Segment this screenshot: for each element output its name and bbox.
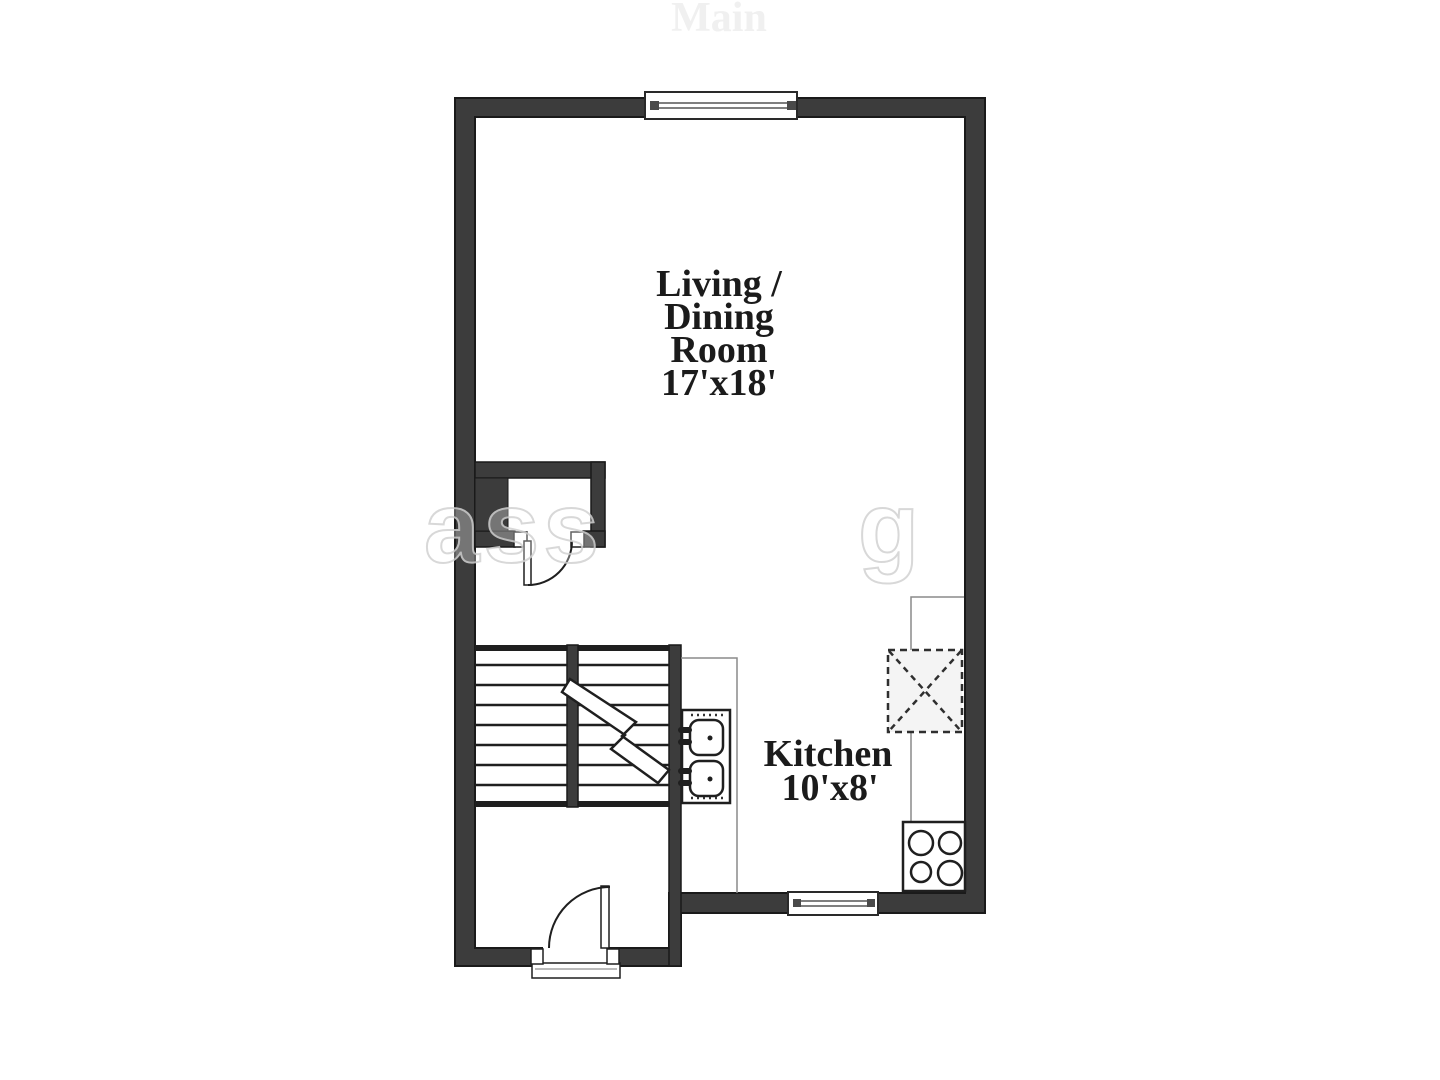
sink-basin-top [690, 720, 723, 755]
faint-floor-title: Main [671, 0, 767, 41]
bottom-window-frame [788, 892, 878, 915]
watermark-fragment-right: g [858, 472, 923, 584]
faucet-top-b [678, 739, 692, 745]
burner-bottom-left [911, 862, 931, 882]
top-window-jamb-right [787, 101, 796, 110]
stove [903, 822, 965, 891]
watermark-fragment-left: ass [424, 472, 603, 584]
sink-basin-bottom [690, 761, 723, 796]
dashed-appliance-box [888, 650, 962, 732]
sink-drain-top [708, 736, 713, 741]
faucet-bottom-a [678, 768, 692, 774]
living-dining-label-dimensions: 17'x18' [661, 362, 777, 404]
sink-drain-bottom [708, 777, 713, 782]
bottom-window-jamb-left [793, 899, 801, 907]
faucet-bottom-b [678, 780, 692, 786]
top-window-frame [645, 92, 797, 119]
top-window-jamb-left [650, 101, 659, 110]
stairs-center-divider [567, 645, 578, 807]
bottom-window [788, 892, 878, 915]
entry-door-stop-right [607, 949, 619, 964]
watermark: ass g [424, 472, 923, 584]
entry-door-leaf [601, 886, 609, 948]
entry-door [531, 886, 620, 978]
floor-plan-canvas: Living / Dining Room 17'x18' Kitchen 10'… [0, 0, 1440, 1080]
kitchen-sink [678, 710, 730, 803]
faucet-top-a [678, 727, 692, 733]
bottom-window-jamb-right [867, 899, 875, 907]
stairs [475, 645, 669, 807]
entry-door-stop-left [531, 949, 543, 964]
burner-top-right [939, 832, 961, 854]
kitchen-label-dimensions: 10'x8' [781, 767, 878, 809]
stairs-left-flight-treads [475, 665, 567, 785]
floor-plan-page: Living / Dining Room 17'x18' Kitchen 10'… [0, 0, 1440, 1080]
stairs-partition-wall [669, 645, 681, 966]
burner-bottom-right [938, 861, 962, 885]
burner-top-left [909, 831, 933, 855]
top-window [645, 92, 797, 119]
entry-threshold [532, 963, 620, 978]
